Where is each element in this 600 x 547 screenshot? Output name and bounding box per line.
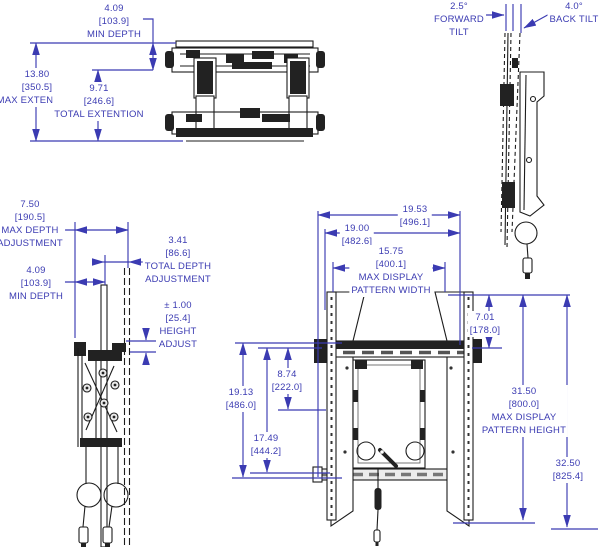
dim-label-front-height-17-49: 17.49 [444.2] — [249, 432, 283, 458]
side-view-drawing — [74, 268, 130, 547]
dim-label-max-display-pattern-width: 15.75 [400.1] MAX DISPLAY PATTERN WIDTH — [349, 245, 432, 297]
dim-label-front-width-overall: 19.53 [496.1] — [398, 203, 432, 229]
dim-label-forward-tilt: 2.5° FORWARD TILT — [432, 0, 486, 39]
dim-label-back-tilt: 4.0° BACK TILT — [548, 0, 600, 26]
dim-label-max-display-pattern-height: 31.50 [800.0] MAX DISPLAY PATTERN HEIGHT — [480, 385, 568, 437]
dim-label-side-min-depth: 4.09 [103.9] MIN DEPTH — [7, 264, 65, 303]
top-view-drawing — [165, 41, 325, 141]
dim-label-total-depth-adjustment: 3.41 [86.6] TOTAL DEPTH ADJUSTMENT — [143, 234, 213, 286]
tilt-side-view-drawing — [500, 33, 544, 279]
mount-dimension-drawing: 4.09 [103.9] MIN DEPTH 13.80 [350.5] MAX… — [0, 0, 600, 547]
dim-label-front-top-offset: 7.01 [178.0] — [468, 311, 502, 337]
dim-label-front-height-19-13: 19.13 [486.0] — [224, 386, 258, 412]
dim-label-height-adjust: ± 1.00 [25.4] HEIGHT ADJUST — [157, 299, 199, 351]
dim-label-total-extention: 9.71 [246.6] TOTAL EXTENTION — [52, 82, 145, 121]
dim-label-front-height-overall: 32.50 [825.4] — [551, 457, 585, 483]
dim-label-front-height-8-74: 8.74 [222.0] — [270, 368, 304, 394]
dim-label-max-depth-adjustment: 7.50 [190.5] MAX DEPTH ADJUSTMENT — [0, 198, 65, 250]
front-view-drawing — [313, 292, 482, 546]
dim-label-top-min-depth: 4.09 [103.9] MIN DEPTH — [85, 2, 143, 41]
